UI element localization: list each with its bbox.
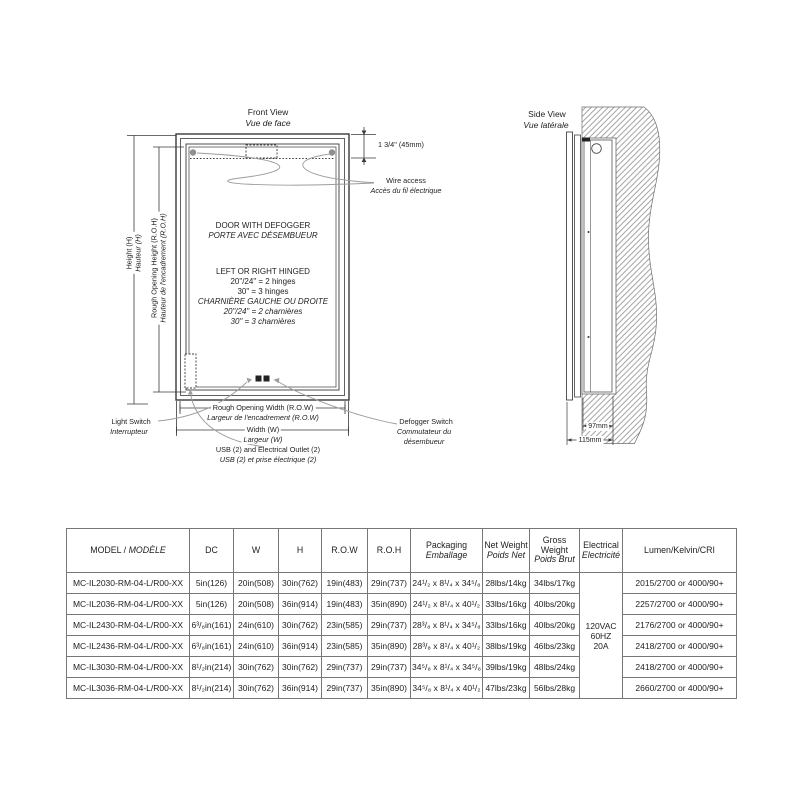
col-header-dc: DC bbox=[190, 529, 234, 573]
cell-packaging: 28³/₈ x 8¹/₄ x 40¹/₂ bbox=[411, 636, 483, 657]
spec-sheet: Front View Vue de face 1 3/4" (45mm) Wir… bbox=[0, 0, 800, 800]
cell-net: 33lbs/16kg bbox=[483, 594, 530, 615]
table-row: MC-IL2036-RM-04-L/R00-XX 5in(126) 20in(5… bbox=[67, 594, 737, 615]
cell-row: 29in(737) bbox=[322, 678, 368, 699]
cell-gross: 40lbs/20kg bbox=[530, 615, 580, 636]
cell-packaging: 34⁵/₈ x 8¹/₄ x 34⁵/₈ bbox=[411, 657, 483, 678]
side-view-title: Side View bbox=[528, 110, 566, 119]
door-defogger-label: DOOR WITH DEFOGGER bbox=[198, 221, 328, 231]
cell-lumen: 2418/2700 or 4000/90+ bbox=[623, 657, 737, 678]
cell-packaging: 28³/₈ x 8¹/₄ x 34⁵/₈ bbox=[411, 615, 483, 636]
hinge-note-2: 20"/24" = 2 hinges bbox=[198, 277, 328, 287]
cell-roh: 35in(890) bbox=[368, 594, 411, 615]
col-header-net-weight: Net WeightPoids Net bbox=[483, 529, 530, 573]
cell-lumen: 2015/2700 or 4000/90+ bbox=[623, 573, 737, 594]
cell-lumen: 2176/2700 or 4000/90+ bbox=[623, 615, 737, 636]
cell-dc: 5in(126) bbox=[190, 594, 234, 615]
wire-access-knockout-right bbox=[329, 149, 335, 155]
table-row: MC-IL2430-RM-04-L/R00-XX 6³/₈in(161) 24i… bbox=[67, 615, 737, 636]
col-header-row: R.O.W bbox=[322, 529, 368, 573]
col-header-w: W bbox=[234, 529, 279, 573]
col-header-electrical: ElectricalElectricité bbox=[580, 529, 623, 573]
cell-model: MC-IL3030-RM-04-L/R00-XX bbox=[67, 657, 190, 678]
side-view-cabinet bbox=[567, 132, 617, 400]
table-row: MC-IL2030-RM-04-L/R00-XX 5in(126) 20in(5… bbox=[67, 573, 737, 594]
cell-lumen: 2660/2700 or 4000/90+ bbox=[623, 678, 737, 699]
cell-roh: 35in(890) bbox=[368, 678, 411, 699]
cell-row: 19in(483) bbox=[322, 573, 368, 594]
cell-electrical-merged: 120VAC 60HZ 20A bbox=[580, 573, 623, 699]
recessed-depth-label: 97mm bbox=[586, 422, 609, 431]
cell-model: MC-IL2430-RM-04-L/R00-XX bbox=[67, 615, 190, 636]
col-header-h: H bbox=[279, 529, 322, 573]
col-header-roh: R.O.H bbox=[368, 529, 411, 573]
cell-gross: 56lbs/28kg bbox=[530, 678, 580, 699]
cell-row: 23in(585) bbox=[322, 636, 368, 657]
table-row: MC-IL3036-RM-04-L/R00-XX 8¹/₂in(214) 30i… bbox=[67, 678, 737, 699]
cell-model: MC-IL2030-RM-04-L/R00-XX bbox=[67, 573, 190, 594]
cell-roh: 35in(890) bbox=[368, 636, 411, 657]
cell-dc: 8¹/₂in(214) bbox=[190, 657, 234, 678]
cell-roh: 29in(737) bbox=[368, 657, 411, 678]
hinge-note-fr-2: 20"/24" = 2 charnières bbox=[198, 307, 328, 317]
cell-model: MC-IL3036-RM-04-L/R00-XX bbox=[67, 678, 190, 699]
cell-lumen: 2257/2700 or 4000/90+ bbox=[623, 594, 737, 615]
cell-row: 23in(585) bbox=[322, 615, 368, 636]
cell-gross: 34lbs/17kg bbox=[530, 573, 580, 594]
hinge-note-fr: CHARNIÈRE GAUCHE OU DROITE bbox=[198, 297, 328, 307]
hinge-note-3: 30" = 3 hinges bbox=[198, 287, 328, 297]
light-switch-label: Light Switch bbox=[111, 417, 150, 426]
front-view-title-fr: Vue de face bbox=[245, 119, 290, 128]
usb-outlet-label: USB (2) and Electrical Outlet (2) bbox=[216, 445, 320, 454]
defogger-switch-label-fr2: désembueur bbox=[404, 437, 445, 446]
cell-h: 30in(762) bbox=[279, 573, 322, 594]
defogger-switch-label-fr1: Commutateur du bbox=[397, 427, 451, 436]
cell-roh: 29in(737) bbox=[368, 573, 411, 594]
cell-gross: 46lbs/23kg bbox=[530, 636, 580, 657]
defogger-switch-label: Defogger Switch bbox=[399, 417, 453, 426]
cell-gross: 48lbs/24kg bbox=[530, 657, 580, 678]
wire-access-knockout-left bbox=[190, 149, 196, 155]
door-defogger-label-fr: PORTE AVEC DÉSEMBUEUR bbox=[198, 231, 328, 241]
roh-label-en: Rough Opening Height (R.O.H) bbox=[150, 213, 159, 322]
cell-net: 39lbs/19kg bbox=[483, 657, 530, 678]
cell-model: MC-IL2436-RM-04-L/R00-XX bbox=[67, 636, 190, 657]
specification-table: MODEL / MODÈLE DC W H R.O.W R.O.H Packag… bbox=[66, 528, 737, 699]
cell-w: 30in(762) bbox=[234, 657, 279, 678]
cell-model: MC-IL2036-RM-04-L/R00-XX bbox=[67, 594, 190, 615]
cell-row: 19in(483) bbox=[322, 594, 368, 615]
top-frame-dimension-label: 1 3/4" (45mm) bbox=[378, 140, 424, 149]
cell-w: 30in(762) bbox=[234, 678, 279, 699]
cell-packaging: 24¹/₂ x 8¹/₄ x 34⁵/₈ bbox=[411, 573, 483, 594]
cell-w: 20in(508) bbox=[234, 573, 279, 594]
hinge-note-fr-3: 30" = 3 charnières bbox=[198, 317, 328, 327]
side-view-title-fr: Vue latérale bbox=[523, 121, 568, 130]
cell-dc: 8¹/₂in(214) bbox=[190, 678, 234, 699]
cell-packaging: 24¹/₂ x 8¹/₄ x 40¹/₂ bbox=[411, 594, 483, 615]
cell-lumen: 2418/2700 or 4000/90+ bbox=[623, 636, 737, 657]
cell-net: 47lbs/23kg bbox=[483, 678, 530, 699]
col-header-gross-weight: Gross WeightPoids Brut bbox=[530, 529, 580, 573]
wire-access-label: Wire access bbox=[386, 176, 426, 185]
cell-net: 38lbs/19kg bbox=[483, 636, 530, 657]
cell-gross: 40lbs/20kg bbox=[530, 594, 580, 615]
cell-row: 29in(737) bbox=[322, 657, 368, 678]
height-label-fr: Hauteur (H) bbox=[134, 234, 143, 272]
col-header-lumen: Lumen/Kelvin/CRI bbox=[623, 529, 737, 573]
col-header-packaging: PackagingEmballage bbox=[411, 529, 483, 573]
cell-packaging: 34⁵/₈ x 8¹/₄ x 40¹/₂ bbox=[411, 678, 483, 699]
row-dimension-label-fr: Largeur de l'encadrement (R.O.W) bbox=[205, 413, 321, 422]
cell-net: 33lbs/16kg bbox=[483, 615, 530, 636]
roh-label-fr: Hauteur de l'encadrement (R.O.H) bbox=[159, 213, 168, 322]
col-header-model: MODEL / MODÈLE bbox=[67, 529, 190, 573]
cell-h: 30in(762) bbox=[279, 657, 322, 678]
cell-w: 24in(610) bbox=[234, 636, 279, 657]
cell-w: 20in(508) bbox=[234, 594, 279, 615]
cell-h: 36in(914) bbox=[279, 678, 322, 699]
cell-h: 36in(914) bbox=[279, 636, 322, 657]
width-dimension-label-fr: Largeur (W) bbox=[242, 435, 285, 444]
cell-net: 28lbs/14kg bbox=[483, 573, 530, 594]
cell-h: 30in(762) bbox=[279, 615, 322, 636]
wire-access-label-fr: Accès du fil électrique bbox=[371, 186, 442, 195]
technical-drawing bbox=[0, 0, 800, 520]
cell-dc: 6³/₈in(161) bbox=[190, 615, 234, 636]
cell-dc: 5in(126) bbox=[190, 573, 234, 594]
row-dimension-label: Rough Opening Width (R.O.W) bbox=[211, 403, 316, 412]
table-row: MC-IL2436-RM-04-L/R00-XX 6³/₈in(161) 24i… bbox=[67, 636, 737, 657]
hinge-note: LEFT OR RIGHT HINGED bbox=[198, 267, 328, 277]
table-row: MC-IL3030-RM-04-L/R00-XX 8¹/₂in(214) 30i… bbox=[67, 657, 737, 678]
light-switch-label-fr: Interrupteur bbox=[110, 427, 148, 436]
header-row: MODEL / MODÈLE DC W H R.O.W R.O.H Packag… bbox=[67, 529, 737, 573]
door-text-block: DOOR WITH DEFOGGER PORTE AVEC DÉSEMBUEUR… bbox=[198, 221, 328, 327]
cell-w: 24in(610) bbox=[234, 615, 279, 636]
switch-buttons bbox=[256, 376, 270, 382]
width-dimension-label: Width (W) bbox=[245, 425, 281, 434]
cell-h: 36in(914) bbox=[279, 594, 322, 615]
total-depth-label: 115mm bbox=[577, 436, 604, 445]
cell-roh: 29in(737) bbox=[368, 615, 411, 636]
front-view-title: Front View bbox=[248, 108, 288, 117]
cell-dc: 6³/₈in(161) bbox=[190, 636, 234, 657]
usb-outlet-label-fr: USB (2) et prise électrique (2) bbox=[220, 455, 317, 464]
